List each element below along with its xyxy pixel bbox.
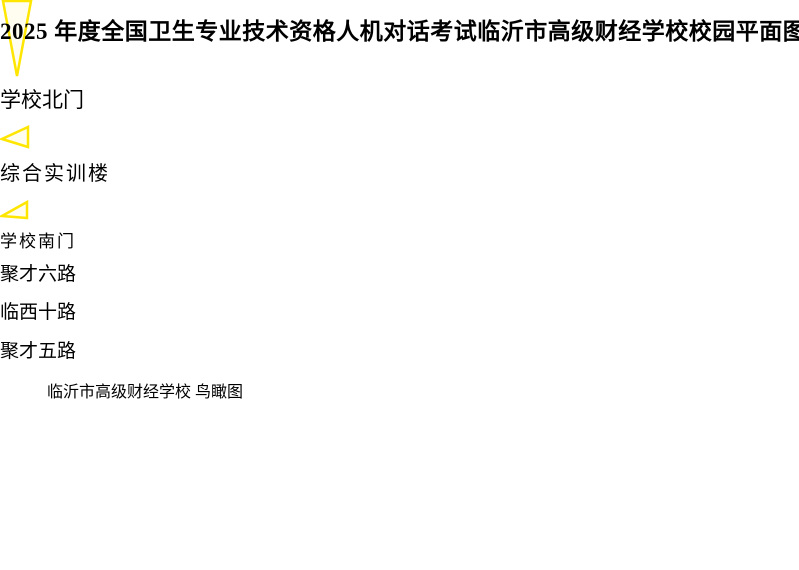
campus-aerial-photo: 临沂市高级财经学校 鸟瞰图 [47,63,743,549]
page-title: 2025 年度全国卫生专业技术资格人机对话考试临沂市高级财经学校校园平面图 [0,12,799,46]
training-building-callout-pointer [0,125,30,152]
campus-map-page: 2025 年度全国卫生专业技术资格人机对话考试临沂市高级财经学校校园平面图 [0,0,799,570]
south-gate-callout-pointer [0,200,29,222]
southeast-field [47,63,743,549]
